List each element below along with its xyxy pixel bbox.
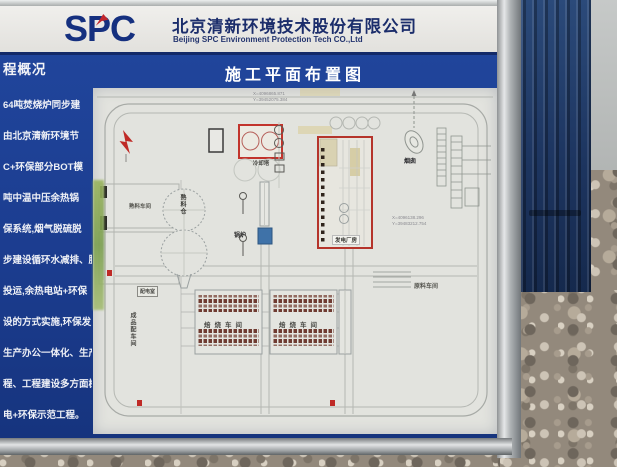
left-panel-lines: 64吨焚烧炉同步建由北京清新环境节C+环保部分BOT模吨中温中压余热锅保系统,烟… (3, 90, 92, 431)
calcining-workshop-left-label: 焙烧车间 (204, 319, 246, 329)
left-panel-line: 吨中温中压余热锅 (3, 183, 92, 214)
chimney-label: 烟囱 (404, 156, 416, 165)
left-panel-line: 投运,余热电站+环保 (3, 276, 92, 307)
survey-coordinate-right: X=4096138.296 Y=39483212.754 (392, 215, 426, 227)
raw-material-workshop-label: 原料车间 (414, 281, 438, 290)
company-name-en: Beijing SPC Environment Protection Tech … (173, 35, 363, 44)
sign-board: SPC 北京清新环境技术股份有限公司 Beijing SPC Environme… (0, 6, 498, 440)
left-panel-line: 保系统,烟气脱硫脱 (3, 214, 92, 245)
boiler-shape (258, 182, 272, 244)
board-header: SPC 北京清新环境技术股份有限公司 Beijing SPC Environme… (0, 6, 498, 55)
left-panel-line: 程、工程建设多方面树立 (3, 369, 92, 400)
cooling-tower-label: 冷却塔 (241, 159, 281, 167)
board-frame-right-bar (497, 0, 521, 458)
spc-logo-text: SPC (64, 8, 135, 49)
tank-row (330, 117, 380, 129)
clinker-silo-label: 熟料仓 (178, 194, 187, 215)
coordinate-y: Y=39483212.754 (392, 221, 426, 227)
board-frame-top (0, 0, 505, 6)
foreground-plants (93, 180, 104, 310)
site-plan-panel: X=4096865.871 Y=39452075.384 X=4096138.2… (93, 88, 497, 434)
calcining-workshop-right-label: 焙烧车间 (279, 319, 321, 329)
left-panel-line: 电+环保示范工程。 (3, 400, 92, 431)
product-distribution-label: 成品配车间 (128, 312, 137, 347)
site-roads (97, 97, 493, 416)
conveyor-lines (373, 272, 411, 287)
power-house-label: 发电厂房 (332, 235, 360, 245)
left-panel-line: 设的方式实施,环保发 (3, 307, 92, 338)
construction-site-photo: SPC 北京清新环境技术股份有限公司 Beijing SPC Environme… (0, 0, 617, 467)
site-plan-drawing (93, 88, 497, 434)
board-frame-bottom-bar (0, 438, 512, 455)
chimney-shape (401, 90, 426, 156)
company-name-cn: 北京清新环境技术股份有限公司 (172, 13, 417, 37)
diagram-title: 施工平面布置图 (93, 61, 497, 85)
left-panel-line: 64吨焚烧炉同步建 (3, 90, 92, 121)
coordinate-y: Y=39452075.384 (253, 97, 287, 103)
power-house-shape (318, 137, 372, 248)
boiler-label: 锅炉 (234, 230, 246, 239)
flue-gas-equipment (437, 128, 491, 208)
utility-box-outline (209, 129, 223, 152)
left-panel-line: C+环保部分BOT模 (3, 152, 92, 183)
clinker-workshop-label: 熟料车间 (129, 202, 151, 210)
survey-coordinate-top: X=4096865.871 Y=39452075.384 (253, 91, 287, 103)
power-distribution-room-label: 配电室 (137, 286, 158, 297)
left-panel-line: 由北京清新环境节 (3, 121, 92, 152)
left-panel-line: 生产办公一体化、生产 (3, 338, 92, 369)
left-panel-line: 步建设循环水减排、脱 (3, 245, 92, 276)
container-latch (529, 210, 581, 216)
shipping-container (521, 0, 591, 292)
spc-logo: SPC (64, 7, 164, 51)
north-arrow-icon (120, 130, 134, 162)
left-panel-title: 程概况 (3, 58, 47, 78)
